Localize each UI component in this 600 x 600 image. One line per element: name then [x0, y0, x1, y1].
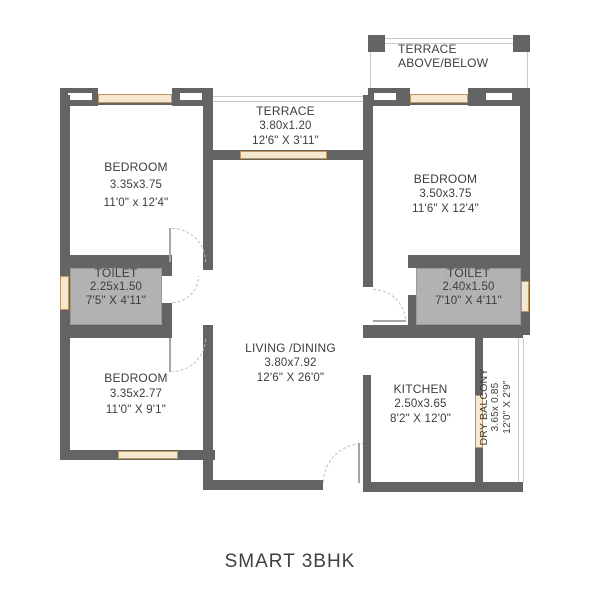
room-size-imperial: 12'6" X 26'0"	[218, 371, 363, 386]
room-name: TERRACE	[213, 104, 358, 119]
room-size-imperial: 8'2" X 12'0"	[368, 412, 473, 427]
window-marker	[240, 151, 327, 159]
window-marker	[521, 281, 529, 312]
window-marker	[410, 94, 468, 103]
room-name: BEDROOM	[66, 370, 206, 386]
door-swing-arc	[172, 338, 206, 372]
toilet-right-label: TOILET 2.40x1.50 7'10" X 4'11"	[416, 266, 521, 308]
plan-title: SMART 3BHK	[0, 551, 580, 573]
balcony-railing-line	[523, 338, 524, 482]
room-size-metric: 2.40x1.50	[416, 280, 521, 294]
toilet-left-label: TOILET 2.25x1.50 7'5" X 4'11"	[70, 266, 162, 308]
door-swing-arc	[323, 443, 363, 483]
room-size-metric: 3.35x2.77	[66, 386, 206, 402]
room-sub: ABOVE/BELOW	[398, 56, 518, 70]
wall-segment	[60, 325, 170, 338]
dry-balcony-label: DRY BALCONY 3.65x 0.85 12'0" X 2'9"	[478, 352, 516, 462]
wall-segment	[408, 295, 416, 325]
room-size-imperial: 11'6" X 12'4"	[378, 202, 513, 217]
terrace-outline-line	[385, 38, 513, 39]
room-size-imperial: 7'5" X 4'11"	[70, 294, 162, 308]
living-dining-label: LIVING /DINING 3.80x7.92 12'6" X 26'0"	[218, 341, 363, 386]
room-size-metric: 2.25x1.50	[70, 280, 162, 294]
room-size-metric: 2.50x3.65	[368, 397, 473, 412]
room-name: KITCHEN	[368, 382, 473, 397]
door-swing-arc	[373, 289, 406, 322]
room-size-imperial: 11'0" x 12'4"	[66, 194, 206, 212]
floor-plan: TERRACE ABOVE/BELOW	[0, 0, 600, 600]
room-name: BEDROOM	[378, 172, 513, 187]
door-leaf	[373, 320, 406, 322]
terrace-label: TERRACE 3.80x1.20 12'6" X 3'11"	[213, 104, 358, 149]
bedroom-top-right-label: BEDROOM 3.50x3.75 11'6" X 12'4"	[378, 172, 513, 217]
terrace-post	[368, 35, 385, 52]
room-size-imperial: 12'0" X 2'9"	[502, 352, 514, 462]
wall-segment	[203, 480, 323, 490]
terrace-outline-line	[213, 96, 363, 97]
wall-segment	[363, 482, 523, 492]
door-leaf	[169, 228, 171, 262]
kitchen-label: KITCHEN 2.50x3.65 8'2" X 12'0"	[368, 382, 473, 427]
terrace-outline-line	[213, 101, 363, 102]
terrace-top-label: TERRACE ABOVE/BELOW	[398, 42, 518, 70]
window-marker	[98, 94, 172, 103]
room-size-metric: 3.35x3.75	[66, 176, 206, 194]
room-name: BEDROOM	[66, 158, 206, 176]
wall-segment	[363, 325, 523, 338]
room-name: LIVING /DINING	[218, 341, 363, 356]
window-marker	[118, 451, 178, 459]
balcony-railing-line	[518, 338, 519, 482]
door-swing-arc	[172, 276, 199, 303]
room-name: TOILET	[416, 266, 521, 280]
pier-notch	[180, 93, 202, 100]
room-name: TERRACE	[398, 42, 518, 56]
room-size-metric: 3.80x1.20	[213, 119, 358, 134]
room-size-imperial: 12'6" X 3'11"	[213, 134, 358, 149]
room-size-imperial: 7'10" X 4'11"	[416, 294, 521, 308]
pier-notch	[486, 93, 512, 100]
door-swing-arc	[172, 228, 206, 262]
pier-notch	[68, 93, 92, 100]
room-size-metric: 3.50x3.75	[378, 187, 513, 202]
bedroom-bottom-left-label: BEDROOM 3.35x2.77 11'0" X 9'1"	[66, 370, 206, 418]
door-leaf	[169, 338, 171, 372]
bedroom-top-left-label: BEDROOM 3.35x3.75 11'0" x 12'4"	[66, 158, 206, 212]
room-size-imperial: 11'0" X 9'1"	[66, 402, 206, 418]
wall-segment	[363, 95, 373, 287]
room-name: DRY BALCONY	[478, 352, 490, 462]
door-leaf	[358, 443, 360, 483]
pier-notch	[374, 93, 396, 100]
room-name: TOILET	[70, 266, 162, 280]
room-size-metric: 3.65x 0.85	[490, 352, 502, 462]
window-marker	[60, 276, 69, 310]
room-size-metric: 3.80x7.92	[218, 356, 363, 371]
